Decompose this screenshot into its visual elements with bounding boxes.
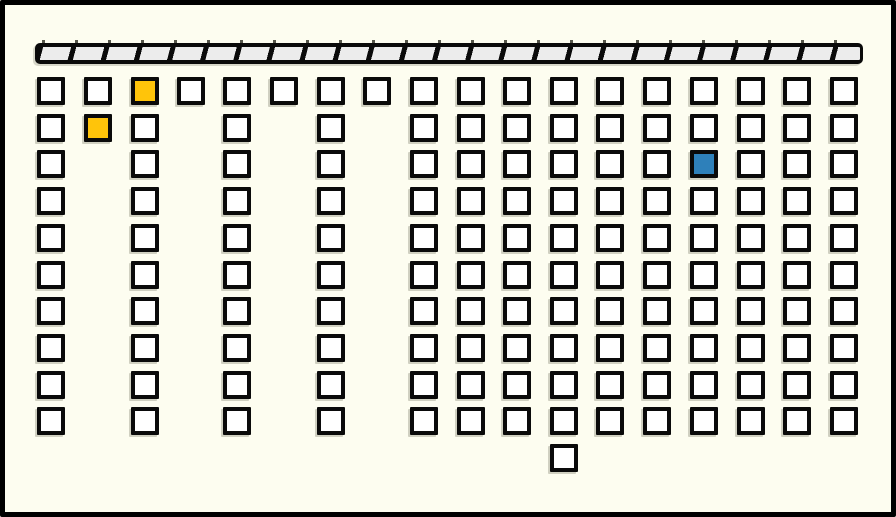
- grid-square[interactable]: [37, 371, 65, 399]
- grid-square[interactable]: [596, 77, 624, 105]
- grid-square[interactable]: [596, 407, 624, 435]
- grid-square[interactable]: [690, 297, 718, 325]
- grid-square[interactable]: [550, 150, 578, 178]
- grid-square[interactable]: [223, 371, 251, 399]
- grid-square[interactable]: [737, 77, 765, 105]
- grid-square[interactable]: [503, 224, 531, 252]
- grid-square[interactable]: [643, 407, 671, 435]
- grid-square[interactable]: [131, 114, 159, 142]
- grid-square[interactable]: [550, 371, 578, 399]
- grid-square[interactable]: [596, 114, 624, 142]
- grid-square[interactable]: [550, 187, 578, 215]
- grid-square[interactable]: [503, 334, 531, 362]
- grid-square[interactable]: [410, 407, 438, 435]
- grid-square[interactable]: [830, 77, 858, 105]
- grid-square[interactable]: [457, 150, 485, 178]
- grid-square[interactable]: [503, 297, 531, 325]
- grid-square[interactable]: [37, 297, 65, 325]
- grid-square[interactable]: [503, 114, 531, 142]
- grid-square[interactable]: [317, 187, 345, 215]
- grid-square[interactable]: [317, 297, 345, 325]
- grid-square[interactable]: [737, 114, 765, 142]
- grid-square[interactable]: [737, 334, 765, 362]
- grid-square[interactable]: [131, 224, 159, 252]
- grid-square[interactable]: [783, 371, 811, 399]
- grid-square[interactable]: [223, 150, 251, 178]
- grid-square[interactable]: [503, 407, 531, 435]
- grid-square[interactable]: [503, 150, 531, 178]
- grid-square[interactable]: [37, 114, 65, 142]
- grid-square[interactable]: [783, 334, 811, 362]
- grid-square[interactable]: [410, 187, 438, 215]
- grid-square[interactable]: [783, 150, 811, 178]
- grid-square[interactable]: [550, 297, 578, 325]
- grid-square[interactable]: [550, 334, 578, 362]
- grid-square[interactable]: [317, 224, 345, 252]
- grid-square[interactable]: [690, 224, 718, 252]
- grid-square[interactable]: [643, 224, 671, 252]
- grid-square[interactable]: [737, 371, 765, 399]
- grid-square[interactable]: [223, 334, 251, 362]
- grid-square[interactable]: [457, 261, 485, 289]
- grid-square[interactable]: [596, 187, 624, 215]
- grid-square[interactable]: [410, 297, 438, 325]
- grid-square[interactable]: [596, 224, 624, 252]
- grid-square[interactable]: [503, 77, 531, 105]
- grid-square[interactable]: [457, 297, 485, 325]
- grid-square[interactable]: [643, 150, 671, 178]
- grid-square[interactable]: [690, 334, 718, 362]
- grid-square[interactable]: [317, 114, 345, 142]
- grid-square[interactable]: [223, 187, 251, 215]
- yellow-square-second-row[interactable]: [84, 114, 112, 142]
- grid-square[interactable]: [457, 334, 485, 362]
- grid-square[interactable]: [550, 407, 578, 435]
- grid-square[interactable]: [737, 407, 765, 435]
- grid-square[interactable]: [410, 224, 438, 252]
- grid-square[interactable]: [783, 114, 811, 142]
- grid-square[interactable]: [37, 334, 65, 362]
- grid-square[interactable]: [410, 261, 438, 289]
- grid-square[interactable]: [131, 187, 159, 215]
- grid-square[interactable]: [37, 150, 65, 178]
- grid-square[interactable]: [177, 77, 205, 105]
- grid-square[interactable]: [783, 187, 811, 215]
- grid-square[interactable]: [84, 77, 112, 105]
- grid-square[interactable]: [830, 224, 858, 252]
- grid-square[interactable]: [596, 297, 624, 325]
- grid-square[interactable]: [131, 261, 159, 289]
- grid-square[interactable]: [223, 297, 251, 325]
- grid-square[interactable]: [737, 187, 765, 215]
- grid-square[interactable]: [596, 334, 624, 362]
- grid-square[interactable]: [223, 114, 251, 142]
- grid-square[interactable]: [550, 444, 578, 472]
- grid-square[interactable]: [223, 77, 251, 105]
- grid-square[interactable]: [503, 261, 531, 289]
- grid-square[interactable]: [317, 150, 345, 178]
- grid-square[interactable]: [830, 114, 858, 142]
- grid-square[interactable]: [690, 261, 718, 289]
- grid-square[interactable]: [503, 187, 531, 215]
- grid-square[interactable]: [410, 150, 438, 178]
- grid-square[interactable]: [737, 224, 765, 252]
- grid-square[interactable]: [37, 261, 65, 289]
- grid-square[interactable]: [596, 150, 624, 178]
- grid-square[interactable]: [830, 297, 858, 325]
- grid-square[interactable]: [783, 77, 811, 105]
- grid-square[interactable]: [131, 407, 159, 435]
- grid-square[interactable]: [550, 77, 578, 105]
- grid-square[interactable]: [223, 224, 251, 252]
- grid-square[interactable]: [37, 224, 65, 252]
- grid-square[interactable]: [643, 187, 671, 215]
- grid-square[interactable]: [410, 77, 438, 105]
- grid-square[interactable]: [131, 297, 159, 325]
- grid-square[interactable]: [457, 114, 485, 142]
- grid-square[interactable]: [596, 371, 624, 399]
- grid-square[interactable]: [317, 371, 345, 399]
- grid-square[interactable]: [457, 187, 485, 215]
- grid-square[interactable]: [737, 261, 765, 289]
- grid-square[interactable]: [690, 114, 718, 142]
- grid-square[interactable]: [690, 371, 718, 399]
- grid-square[interactable]: [131, 150, 159, 178]
- grid-square[interactable]: [457, 77, 485, 105]
- grid-square[interactable]: [643, 77, 671, 105]
- grid-square[interactable]: [317, 407, 345, 435]
- grid-square[interactable]: [457, 407, 485, 435]
- grid-square[interactable]: [457, 371, 485, 399]
- board-canvas: [0, 0, 896, 517]
- grid-square[interactable]: [643, 297, 671, 325]
- blue-square[interactable]: [690, 150, 718, 178]
- grid-square[interactable]: [596, 261, 624, 289]
- grid-square[interactable]: [410, 371, 438, 399]
- grid-square[interactable]: [37, 77, 65, 105]
- grid-square[interactable]: [131, 334, 159, 362]
- grid-square[interactable]: [317, 261, 345, 289]
- grid-square[interactable]: [550, 114, 578, 142]
- grid-square[interactable]: [643, 261, 671, 289]
- grid-square[interactable]: [550, 261, 578, 289]
- grid-square[interactable]: [690, 187, 718, 215]
- grid-square[interactable]: [223, 261, 251, 289]
- grid-square[interactable]: [737, 297, 765, 325]
- grid-square[interactable]: [643, 371, 671, 399]
- grid-square[interactable]: [690, 77, 718, 105]
- grid-square[interactable]: [830, 261, 858, 289]
- grid-square[interactable]: [643, 114, 671, 142]
- grid-square[interactable]: [131, 371, 159, 399]
- grid-square[interactable]: [223, 407, 251, 435]
- grid-square[interactable]: [830, 150, 858, 178]
- grid-square[interactable]: [830, 187, 858, 215]
- grid-square[interactable]: [317, 334, 345, 362]
- squares-layer: [0, 0, 896, 517]
- grid-square[interactable]: [737, 150, 765, 178]
- grid-square[interactable]: [37, 407, 65, 435]
- grid-square[interactable]: [690, 407, 718, 435]
- hatch-tick-marks: [42, 40, 856, 43]
- grid-square[interactable]: [783, 224, 811, 252]
- grid-square[interactable]: [830, 334, 858, 362]
- yellow-square-top-row[interactable]: [131, 77, 159, 105]
- grid-square[interactable]: [783, 261, 811, 289]
- grid-square[interactable]: [457, 224, 485, 252]
- grid-square[interactable]: [37, 187, 65, 215]
- grid-square[interactable]: [830, 407, 858, 435]
- grid-square[interactable]: [783, 297, 811, 325]
- grid-square[interactable]: [363, 77, 391, 105]
- grid-square[interactable]: [270, 77, 298, 105]
- grid-square[interactable]: [317, 77, 345, 105]
- grid-square[interactable]: [783, 407, 811, 435]
- grid-square[interactable]: [830, 371, 858, 399]
- grid-square[interactable]: [550, 224, 578, 252]
- grid-square[interactable]: [503, 371, 531, 399]
- grid-square[interactable]: [410, 334, 438, 362]
- grid-square[interactable]: [410, 114, 438, 142]
- grid-square[interactable]: [643, 334, 671, 362]
